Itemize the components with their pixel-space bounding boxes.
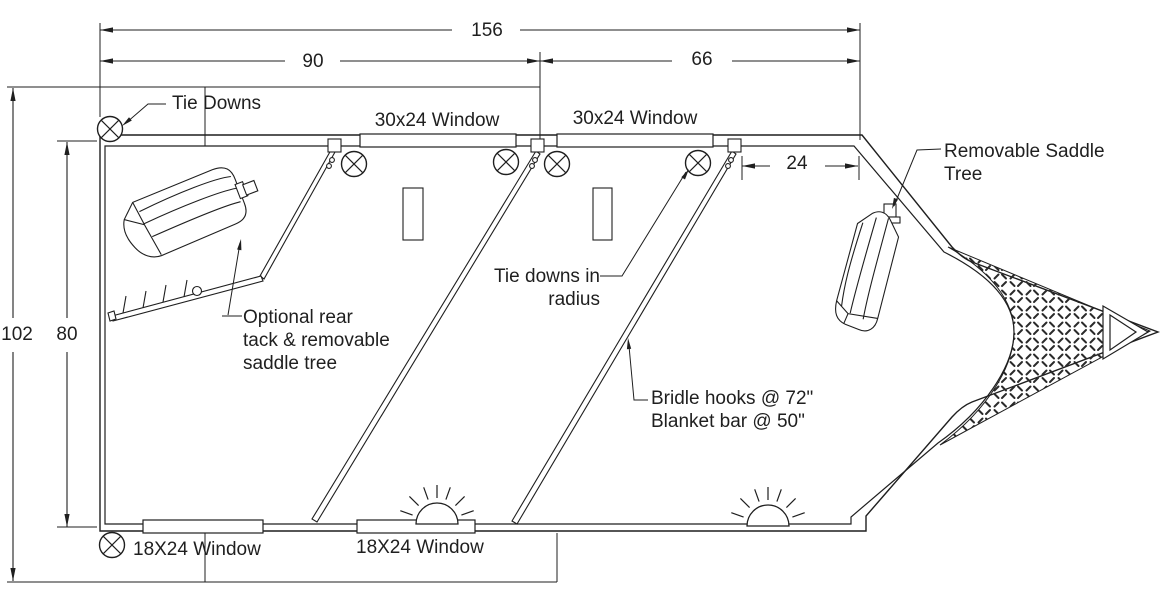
optional-rear-tack-line2: tack & removable bbox=[243, 329, 390, 352]
tie-downs-in-radius-line1: Tie downs in bbox=[478, 265, 600, 288]
top-window-1 bbox=[360, 134, 516, 147]
dim-interior-width: 80 bbox=[45, 323, 89, 346]
dim-overall-width: 102 bbox=[0, 323, 36, 346]
coupler-triangle-icon bbox=[1103, 306, 1148, 359]
bridle-hooks-line1: Bridle hooks @ 72" bbox=[651, 387, 813, 410]
divider-hinge-bracket bbox=[328, 139, 341, 152]
top-window-2 bbox=[557, 134, 713, 147]
divider-hinge-bracket bbox=[728, 139, 741, 152]
tie-down-icon bbox=[98, 117, 123, 142]
bridle-hooks-line2: Blanket bar @ 50" bbox=[651, 410, 813, 433]
optional-rear-tack-label: Optional rear tack & removable saddle tr… bbox=[243, 306, 390, 375]
optional-rear-tack-line3: saddle tree bbox=[243, 352, 390, 375]
divider-wall-3 bbox=[512, 151, 736, 524]
tie-downs-in-radius-line2: radius bbox=[478, 288, 600, 311]
dome-light-icon bbox=[731, 487, 804, 526]
tie-downs-in-radius-label: Tie downs in radius bbox=[478, 265, 600, 311]
top-window-1-label: 30x24 Window bbox=[362, 109, 512, 132]
removable-saddle-tree-label: Removable Saddle Tree bbox=[944, 140, 1105, 186]
divider-hinge-bracket bbox=[531, 139, 544, 152]
bottom-window-1 bbox=[143, 520, 263, 533]
bridle-hook-bar-icon bbox=[108, 276, 263, 321]
dim-nose-stall: 24 bbox=[767, 152, 827, 175]
tie-downs-label: Tie Downs bbox=[172, 92, 261, 115]
removable-saddle-tree-line1: Removable Saddle bbox=[944, 140, 1105, 163]
tie-down-icon bbox=[100, 533, 125, 558]
bottom-window-1-label: 18X24 Window bbox=[133, 538, 261, 561]
bottom-window-2-label: 18X24 Window bbox=[356, 536, 484, 559]
tie-down-icon bbox=[342, 152, 367, 177]
removable-saddle-tree-line2: Tree bbox=[944, 163, 1105, 186]
bridle-hooks-label: Bridle hooks @ 72" Blanket bar @ 50" bbox=[651, 387, 813, 433]
top-window-2-label: 30x24 Window bbox=[560, 107, 710, 130]
stall-fixtures bbox=[403, 188, 612, 240]
dim-front-section: 66 bbox=[657, 48, 747, 71]
rear-tack-wall bbox=[260, 150, 335, 279]
dome-light-icon bbox=[400, 485, 473, 524]
dim-rear-section: 90 bbox=[268, 50, 358, 73]
tie-down-icon bbox=[545, 152, 570, 177]
optional-rear-tack-line1: Optional rear bbox=[243, 306, 390, 329]
nose-saddle-icon bbox=[831, 207, 903, 334]
tie-down-icon bbox=[494, 150, 519, 175]
rear-saddle-icon bbox=[115, 157, 267, 265]
tie-down-icon bbox=[686, 151, 711, 176]
trailer-floor-plan: 156 90 66 102 80 24 Tie Downs 30x24 Wind… bbox=[0, 0, 1163, 604]
extension-lines bbox=[7, 23, 860, 582]
dim-overall-length: 156 bbox=[442, 19, 532, 42]
